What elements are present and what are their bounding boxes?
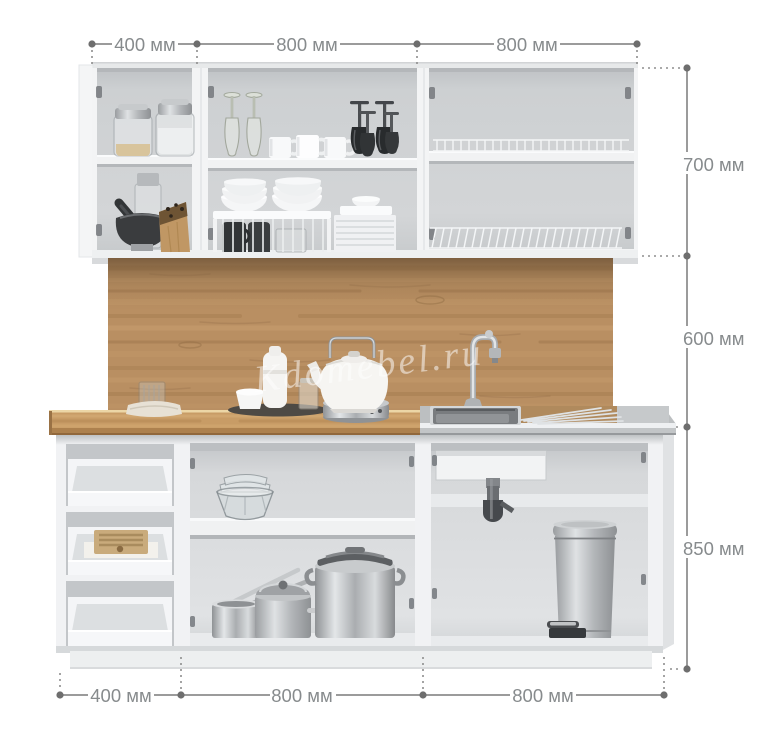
svg-text:800 мм: 800 мм xyxy=(276,34,337,55)
svg-text:850 мм: 850 мм xyxy=(683,538,744,559)
svg-text:400 мм: 400 мм xyxy=(114,34,175,55)
svg-text:800 мм: 800 мм xyxy=(496,34,557,55)
svg-text:800 мм: 800 мм xyxy=(271,685,332,706)
svg-text:600 мм: 600 мм xyxy=(683,328,744,349)
svg-text:400 мм: 400 мм xyxy=(90,685,151,706)
svg-text:800 мм: 800 мм xyxy=(512,685,573,706)
svg-text:700 мм: 700 мм xyxy=(683,154,744,175)
